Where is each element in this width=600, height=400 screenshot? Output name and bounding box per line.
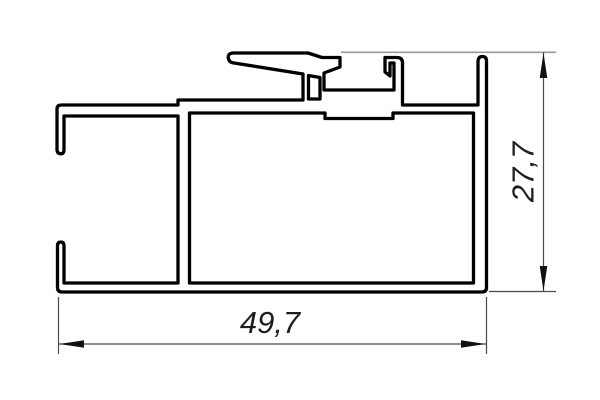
arrow-up-icon [540, 53, 548, 78]
arrow-down-icon [540, 266, 548, 291]
width-dimension: 49,7 [59, 297, 487, 354]
height-dimension: 27,7 [341, 52, 556, 291]
technical-drawing-canvas: 49,7 27,7 [0, 0, 600, 400]
aluminum-profile-cross-section: 49,7 27,7 [0, 0, 600, 400]
profile-body-outline [57, 53, 487, 292]
arrow-right-icon [461, 340, 486, 348]
arrow-left-icon [60, 340, 85, 348]
width-dimension-value: 49,7 [240, 305, 302, 340]
profile-geometry [57, 53, 487, 292]
height-dimension-value: 27,7 [506, 140, 541, 203]
